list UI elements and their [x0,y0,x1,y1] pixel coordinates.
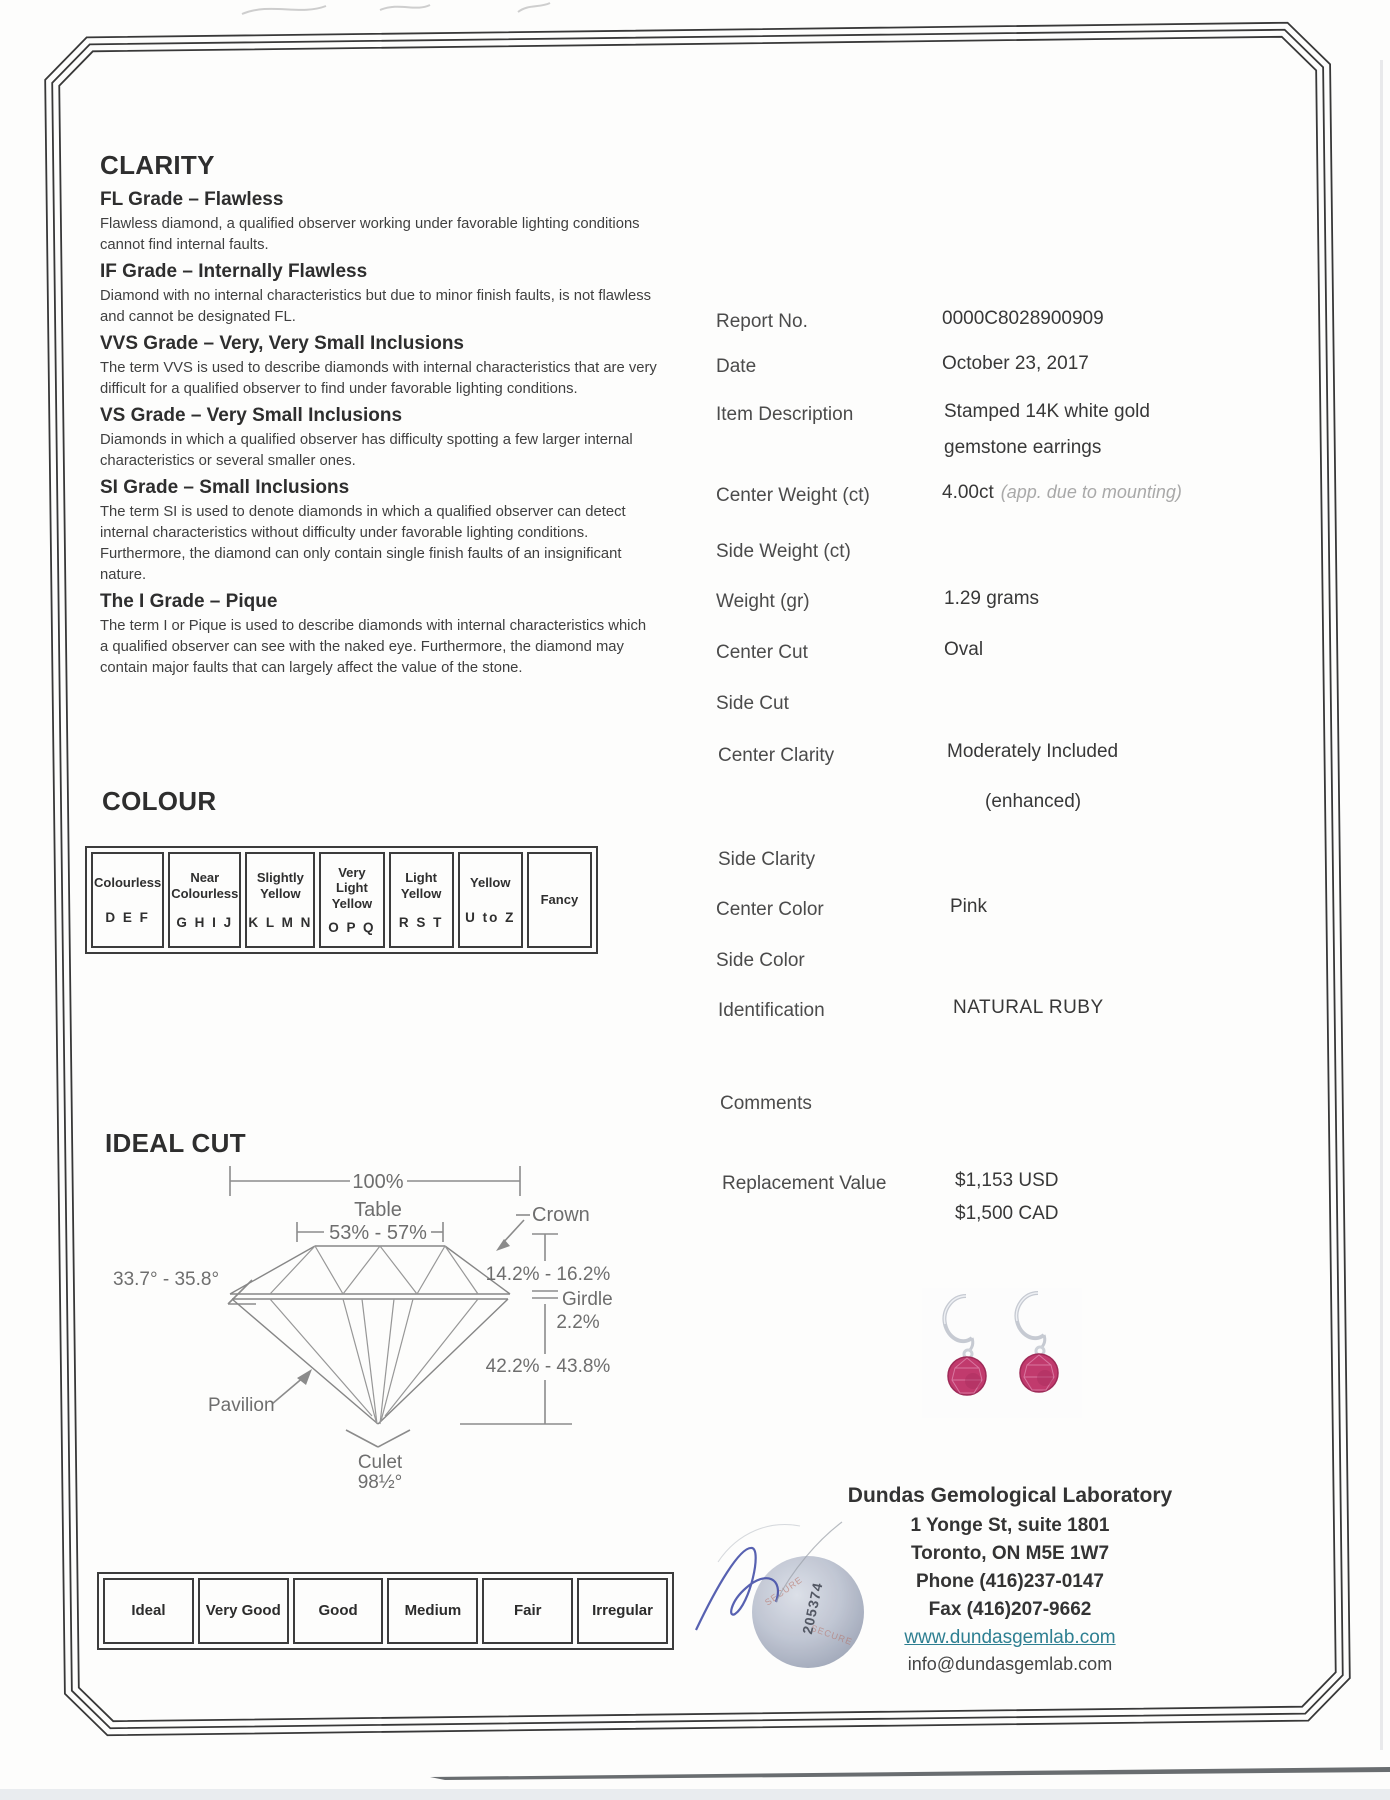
clarity-grade-heading: VVS Grade – Very, Very Small Inclusions [100,333,658,355]
clarity-grade-heading: SI Grade – Small Inclusions [100,477,658,499]
diagram-girdle-pct-label: 2.2% [556,1312,599,1333]
cut-scale-label: Fair [514,1602,542,1621]
center-weight-number: 4.00ct [942,482,994,503]
clarity-grade-si: SI Grade – Small Inclusions The term SI … [100,477,658,586]
item-description-value-line1: Stamped 14K white gold [944,401,1150,423]
diagram-diameter-pct-label: 100% [352,1171,403,1193]
top-edge-pen-marks [230,0,560,22]
cut-scale-cell: Medium [387,1578,478,1644]
report-no-value: 0000C8028900909 [942,308,1104,330]
lab-name: Dundas Gemological Laboratory [820,1484,1200,1508]
identification-value: NATURAL RUBY [953,997,1104,1019]
colour-cell-label: Near Colourless [171,870,238,901]
center-cut-value: Oval [944,639,983,661]
diagram-crown-label: Crown [532,1204,590,1226]
clarity-grade-body: Diamond with no internal characteristics… [100,286,658,328]
colour-scale-table: Colourless D E F Near Colourless G H I J… [85,846,598,954]
cut-scale-label: Irregular [592,1602,653,1621]
date-label: Date [716,356,756,378]
weight-gr-value: 1.29 grams [944,588,1039,610]
side-clarity-label: Side Clarity [718,849,815,871]
colour-cell: Slightly Yellow K L M N [245,852,315,948]
center-clarity-label: Center Clarity [718,745,834,767]
cut-scale-cell: Very Good [198,1578,289,1644]
gemstone-earrings-photo [922,1288,1082,1418]
diagram-culet-angle-label: 98½° [358,1472,403,1493]
colour-cell: Light Yellow R S T [389,852,454,948]
certificate-page: CLARITY FL Grade – Flawless Flawless dia… [0,0,1390,1800]
report-no-label: Report No. [716,311,808,333]
side-color-label: Side Color [716,950,805,972]
scanner-streak [0,1762,1390,1792]
cut-scale-cell: Irregular [577,1578,668,1644]
scan-bottom-strip [0,1789,1390,1800]
paper-edge-shadow [1380,60,1383,1750]
colour-cell: Colourless D E F [91,852,164,948]
center-clarity-value: Moderately Included [947,741,1118,763]
colour-cell: Near Colourless G H I J [168,852,241,948]
date-value: October 23, 2017 [942,353,1089,375]
clarity-grade-body: Diamonds in which a qualified observer h… [100,430,658,472]
center-color-value: Pink [950,896,987,918]
clarity-grade-if: IF Grade – Internally Flawless Diamond w… [100,261,658,328]
replacement-value-usd: $1,153 USD [955,1170,1059,1192]
replacement-value-cad: $1,500 CAD [955,1203,1059,1225]
colour-cell-label: Slightly Yellow [248,870,312,901]
clarity-grade-body: The term SI is used to denote diamonds i… [100,502,658,586]
center-weight-note: (app. due to mounting) [1001,482,1182,502]
diagram-crown-angle-label: 33.7° - 35.8° [113,1269,219,1290]
ideal-cut-title: IDEAL CUT [105,1128,246,1159]
colour-title: COLOUR [102,786,216,817]
cut-scale-cell: Good [293,1578,384,1644]
diagram-table-pct-label: 53% - 57% [329,1222,427,1244]
colour-cell-label: Colourless [94,875,161,891]
diagram-pavilion-pct-label: 42.2% - 43.8% [486,1356,611,1377]
weight-gr-label: Weight (gr) [716,591,810,613]
item-description-label: Item Description [716,404,853,426]
cut-scale-label: Ideal [131,1602,165,1621]
colour-cell-label: Light Yellow [392,870,451,901]
clarity-grade-fl: FL Grade – Flawless Flawless diamond, a … [100,189,658,256]
clarity-grade-body: The term I or Pique is used to describe … [100,616,658,679]
diagram-crown-pct-label: 14.2% - 16.2% [486,1264,611,1285]
ideal-cut-diamond-diagram: 100% Table 53% - 57% Crown 14.2% - 16.2%… [100,1158,625,1503]
center-color-label: Center Color [716,899,824,921]
clarity-grade-vs: VS Grade – Very Small Inclusions Diamond… [100,405,658,472]
cut-scale-cell: Ideal [103,1578,194,1644]
identification-label: Identification [718,1000,825,1022]
replacement-value-label: Replacement Value [722,1173,886,1195]
colour-cell-label: Very Light Yellow [322,865,381,912]
diagram-girdle-label: Girdle [562,1289,613,1310]
colour-cell: Very Light Yellow O P Q [319,852,384,948]
center-clarity-note: (enhanced) [985,791,1081,813]
side-cut-label: Side Cut [716,693,789,715]
comments-label: Comments [720,1093,812,1115]
diagram-table-label: Table [354,1199,402,1221]
appraiser-signature [688,1518,898,1658]
clarity-grade-vvs: VVS Grade – Very, Very Small Inclusions … [100,333,658,400]
colour-cell-letters: K L M N [248,915,312,930]
clarity-grade-heading: IF Grade – Internally Flawless [100,261,658,283]
clarity-grade-body: Flawless diamond, a qualified observer w… [100,214,658,256]
center-weight-label: Center Weight (ct) [716,485,870,507]
cut-scale-label: Medium [405,1602,462,1621]
clarity-title: CLARITY [100,150,658,181]
clarity-grade-heading: VS Grade – Very Small Inclusions [100,405,658,427]
side-weight-label: Side Weight (ct) [716,541,851,563]
colour-cell-label: Yellow [470,875,510,891]
clarity-section: CLARITY FL Grade – Flawless Flawless dia… [100,150,658,679]
colour-cell: Fancy [527,852,592,948]
colour-cell-letters: O P Q [328,920,375,935]
clarity-grade-i: The I Grade – Pique The term I or Pique … [100,591,658,679]
cut-scale-cell: Fair [482,1578,573,1644]
colour-cell-letters: D E F [105,910,150,925]
clarity-grade-body: The term VVS is used to describe diamond… [100,358,658,400]
center-cut-label: Center Cut [716,642,808,664]
colour-cell: Yellow U to Z [458,852,523,948]
cut-scale-label: Very Good [206,1602,281,1621]
colour-cell-label: Fancy [541,892,579,908]
colour-cell-letters: R S T [399,915,444,930]
colour-cell-letters: U to Z [465,910,515,925]
diagram-pavilion-label: Pavilion [208,1395,275,1416]
colour-cell-letters: G H I J [176,915,233,930]
clarity-grade-heading: The I Grade – Pique [100,591,658,613]
cut-scale-label: Good [318,1602,357,1621]
cut-scale-table: Ideal Very Good Good Medium Fair Irregul… [97,1572,674,1650]
item-description-value-line2: gemstone earrings [944,437,1101,459]
diagram-culet-label: Culet [358,1452,403,1473]
clarity-grade-heading: FL Grade – Flawless [100,189,658,211]
center-weight-value: 4.00ct(app. due to mounting) [942,482,1182,504]
